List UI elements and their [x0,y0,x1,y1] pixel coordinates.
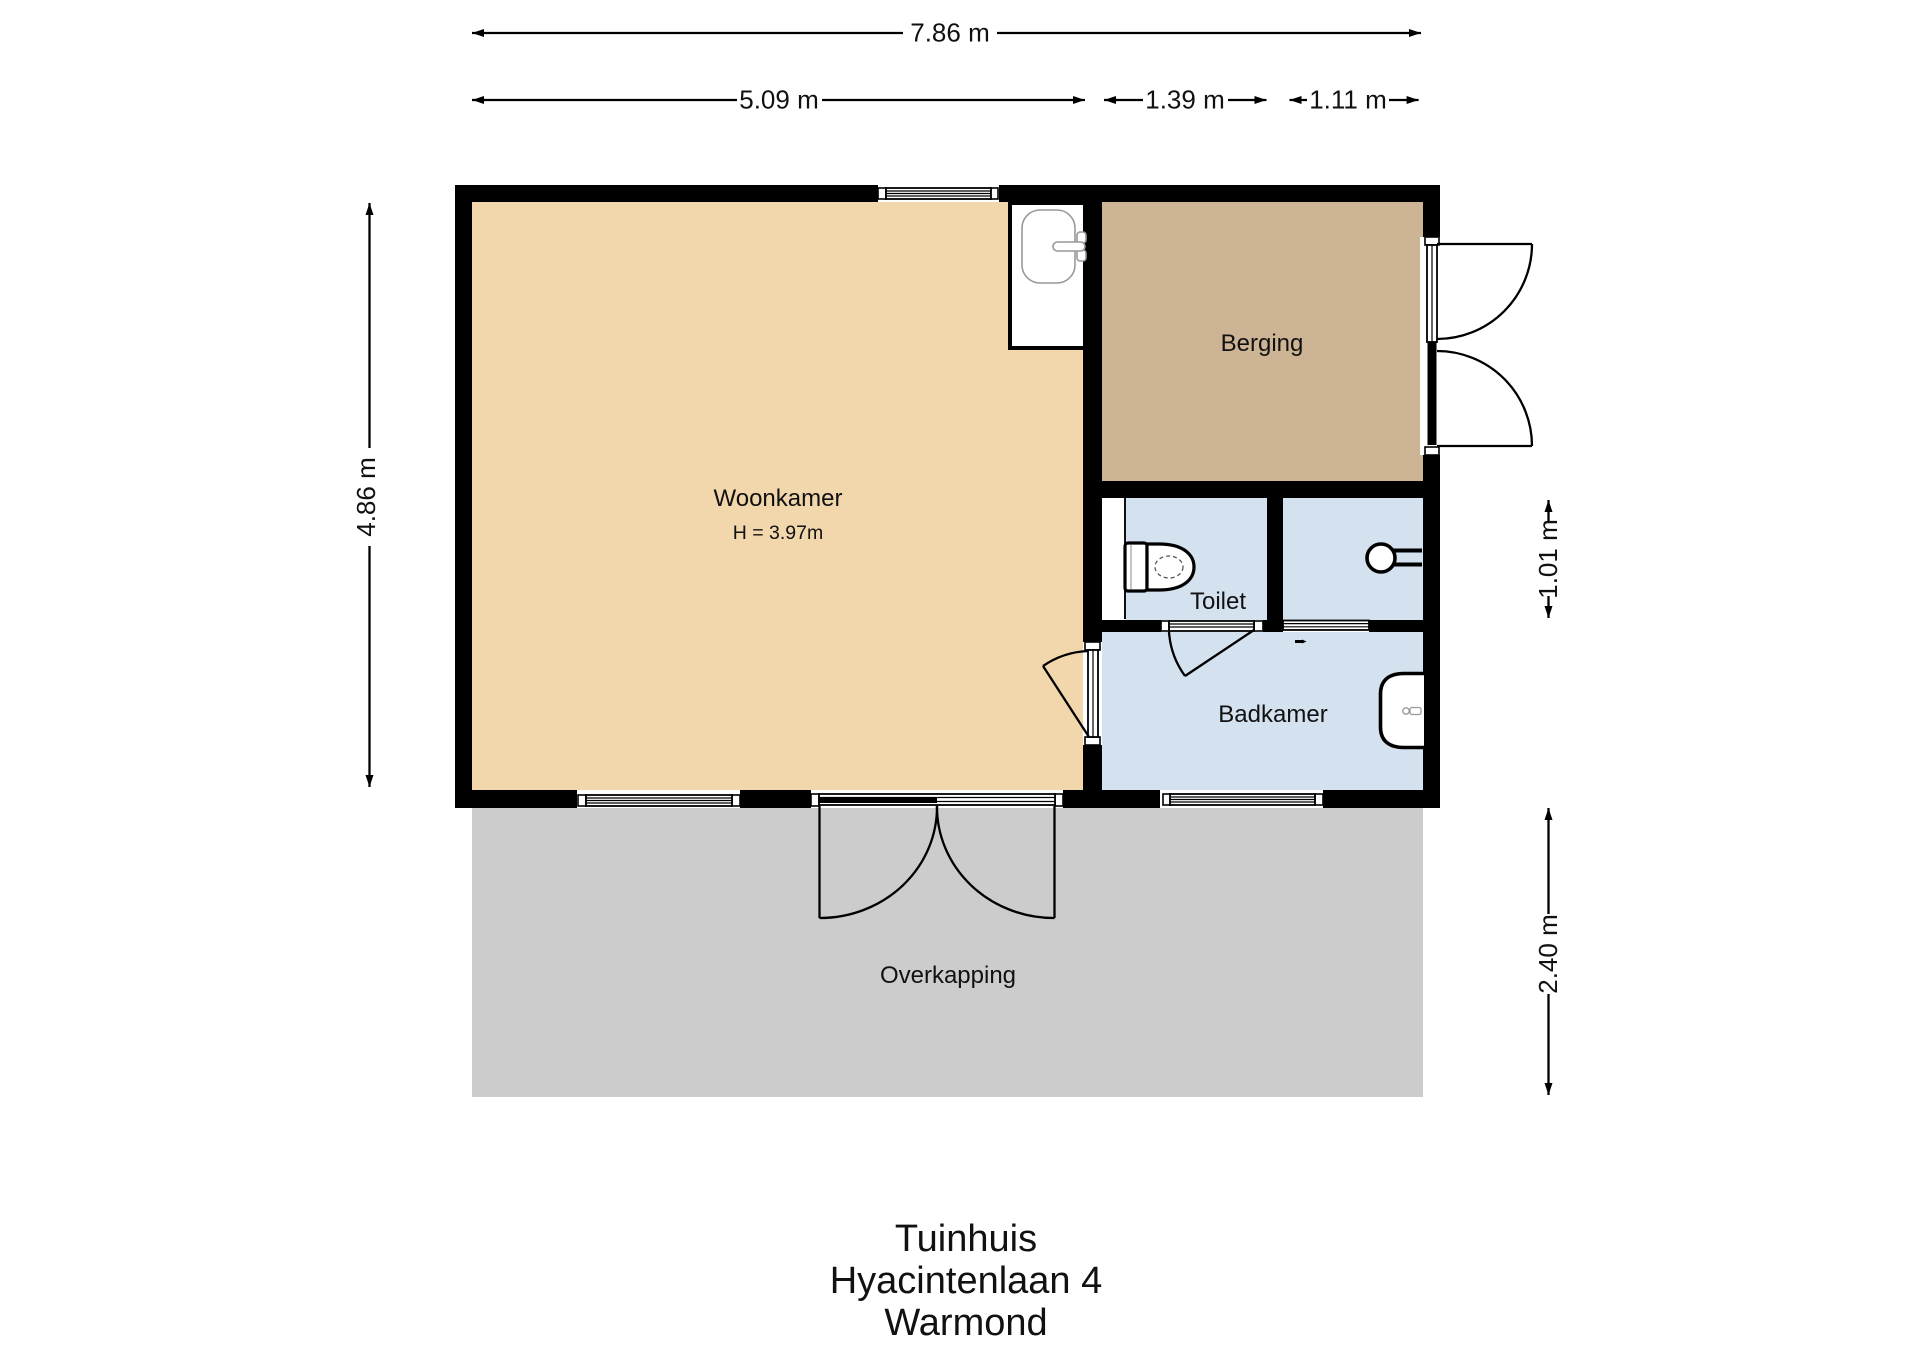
svg-text:H = 3.97m: H = 3.97m [733,522,824,544]
svg-text:1.01 m: 1.01 m [1533,519,1563,599]
svg-text:7.86 m: 7.86 m [910,18,990,48]
svg-text:5.09 m: 5.09 m [739,85,819,115]
svg-text:2.40 m: 2.40 m [1533,914,1563,994]
svg-text:Tuinhuis: Tuinhuis [895,1218,1037,1260]
svg-text:Toilet: Toilet [1190,588,1246,615]
svg-text:Warmond: Warmond [884,1302,1047,1344]
svg-text:Hyacintenlaan 4: Hyacintenlaan 4 [830,1260,1103,1302]
svg-text:Badkamer: Badkamer [1218,701,1327,728]
svg-text:4.86 m: 4.86 m [351,457,381,537]
svg-text:Overkapping: Overkapping [880,962,1016,989]
svg-text:Berging: Berging [1221,330,1304,357]
svg-text:1.11 m: 1.11 m [1309,85,1387,115]
svg-text:1.39 m: 1.39 m [1145,85,1225,115]
svg-text:Woonkamer: Woonkamer [714,485,843,512]
